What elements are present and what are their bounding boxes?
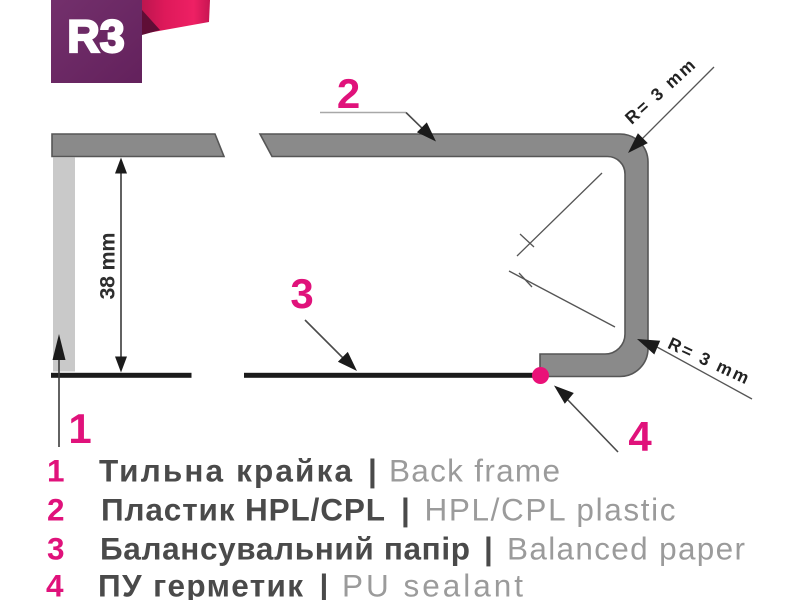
svg-text:Back frame: Back frame [389,452,560,488]
svg-text:R= 3 mm: R= 3 mm [665,333,752,388]
svg-text:Тильна крайка: Тильна крайка [99,452,352,488]
svg-text:2: 2 [47,492,65,528]
svg-text:4: 4 [46,568,64,600]
svg-text:Балансувальний папір: Балансувальний папір [100,530,470,566]
svg-text:2: 2 [337,70,360,117]
svg-text:|: | [484,530,493,566]
svg-text:R3: R3 [67,11,125,62]
svg-text:ПУ герметик: ПУ герметик [98,568,303,600]
svg-text:HPL/CPL plastic: HPL/CPL plastic [425,492,676,528]
svg-text:1: 1 [68,405,91,452]
svg-text:R= 3 mm: R= 3 mm [621,55,699,128]
svg-text:38 mm: 38 mm [96,233,120,300]
svg-text:PU sealant: PU sealant [342,568,523,600]
svg-text:4: 4 [628,413,652,460]
svg-text:3: 3 [290,270,313,317]
svg-text:3: 3 [47,530,65,566]
svg-text:|: | [401,492,410,528]
svg-text:1: 1 [47,452,65,488]
svg-text:Balanced paper: Balanced paper [507,530,745,566]
svg-text:Пластик HPL/CPL: Пластик HPL/CPL [101,492,385,528]
svg-text:|: | [320,568,329,600]
svg-text:|: | [368,452,377,488]
